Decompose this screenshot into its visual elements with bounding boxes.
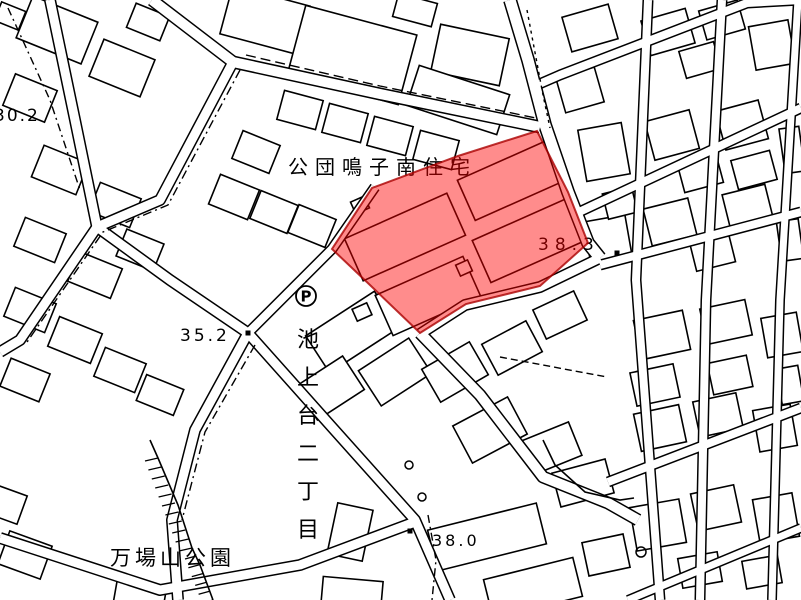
label-spot-elevation-38-0: 38.0 (432, 531, 480, 550)
map-canvas[interactable]: P 公団鳴子南住宅池上台二丁目万場山公園30.235.238.338.0 (0, 0, 801, 600)
cadastral-map[interactable]: P 公団鳴子南住宅池上台二丁目万場山公園30.235.238.338.0 (0, 0, 801, 600)
label-park-name: 万場山公園 (110, 546, 235, 570)
label-district-name: 池 (297, 328, 319, 353)
label-spot-elevation-30-2: 30.2 (0, 106, 40, 126)
label-district-name: 目 (297, 518, 319, 543)
label-district-name: 台 (297, 404, 319, 429)
spot-elevation-dot (615, 251, 620, 256)
building-outline (748, 20, 795, 70)
spot-elevation-dot (408, 529, 413, 534)
parking-icon-letter: P (301, 288, 312, 306)
label-district-name: 上 (297, 366, 319, 391)
label-district-name: 丁 (297, 480, 319, 505)
building-outline (578, 123, 630, 182)
label-district-name: 二 (297, 442, 319, 467)
label-spot-elevation-35-2: 35.2 (180, 326, 230, 346)
spot-elevation-dot (246, 331, 251, 336)
